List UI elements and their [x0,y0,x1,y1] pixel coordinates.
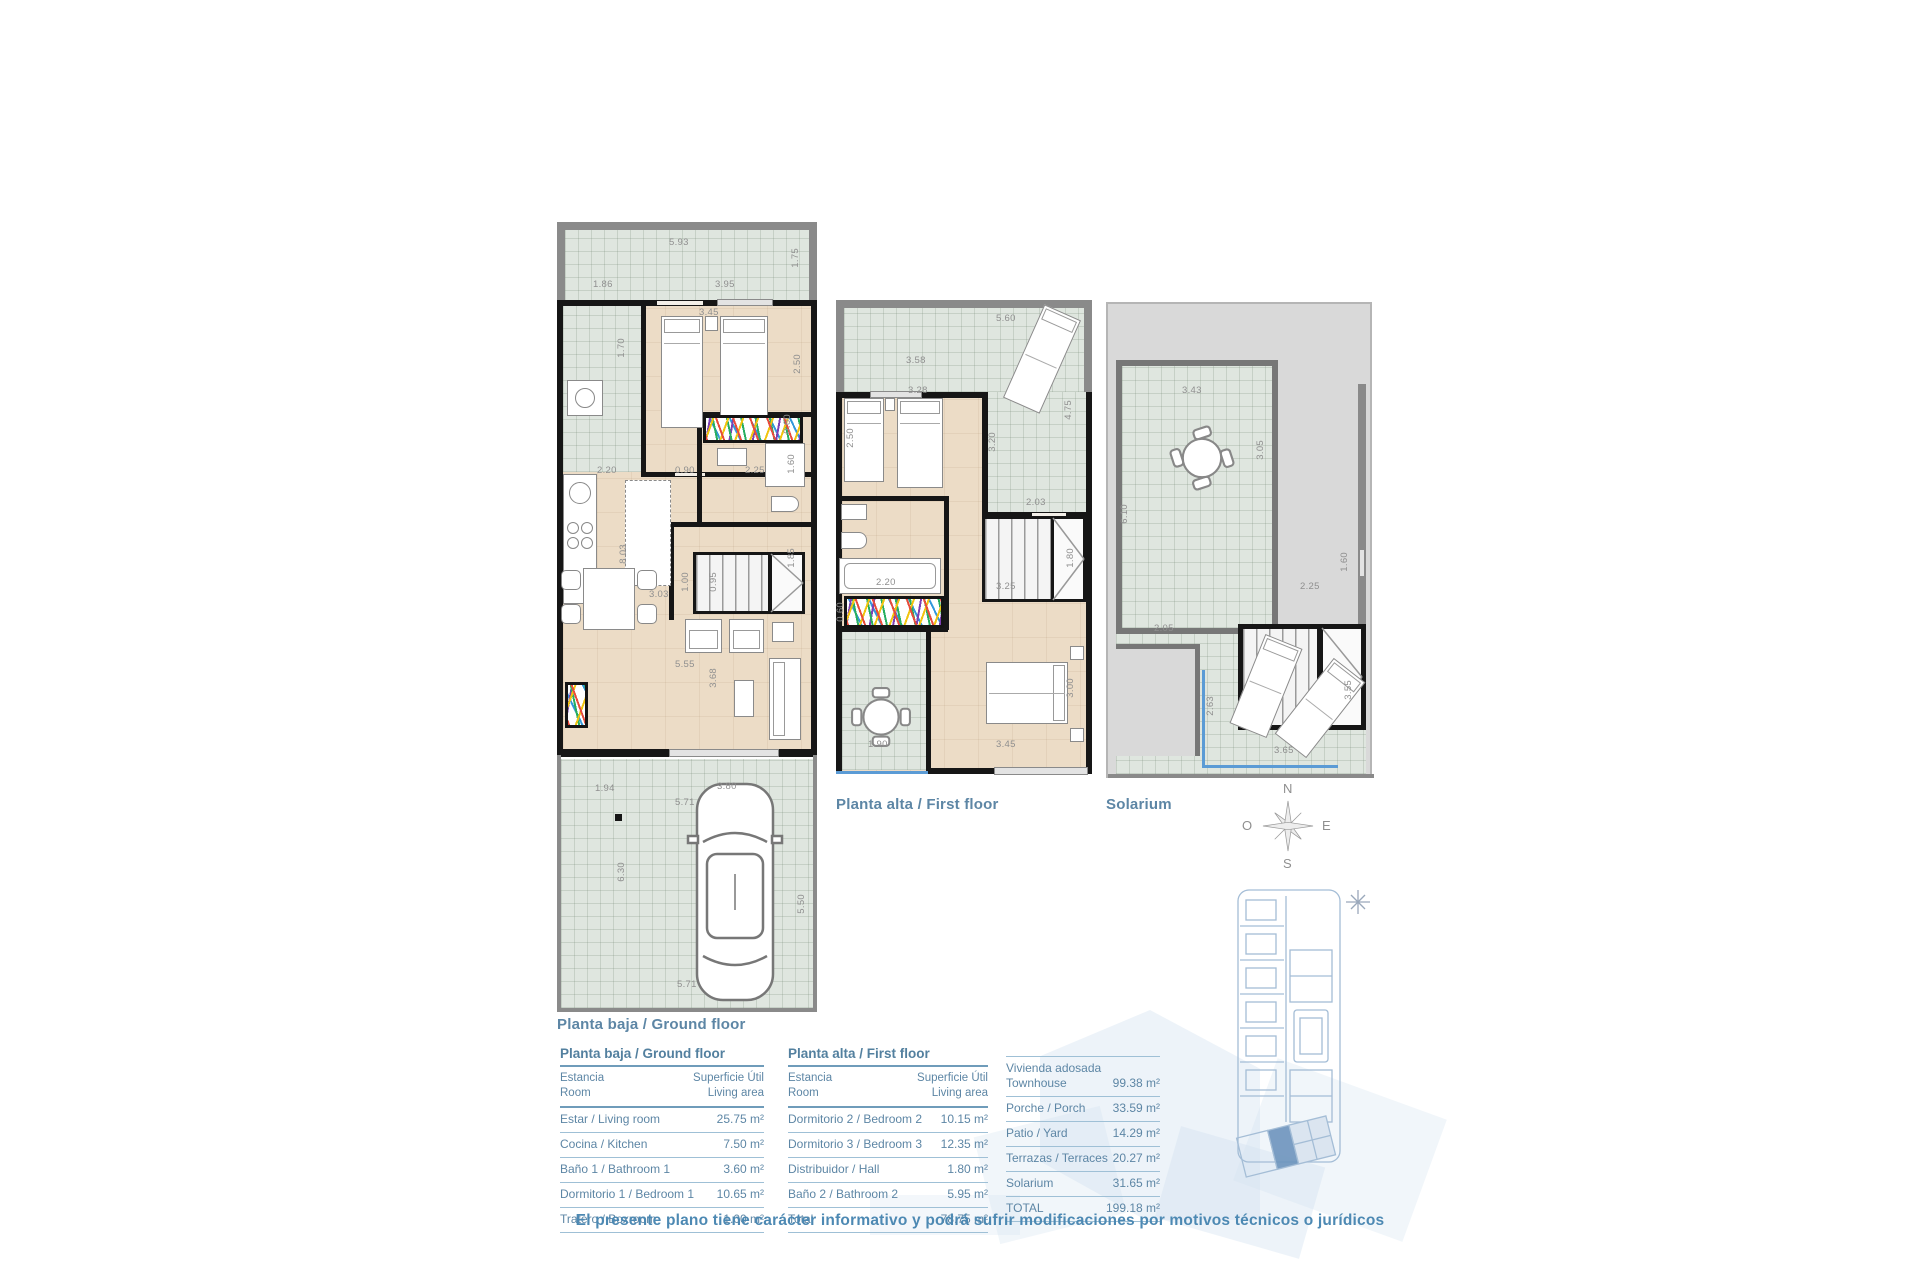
dimension-label: 2.03 [1026,498,1046,508]
table-row: Vivienda adosadaTownhouse 99.38 m² [1006,1057,1160,1097]
dimension-label: 2.50 [793,354,803,374]
dimension-label: 0.90 [675,466,695,476]
dimension-label: 6.30 [617,862,627,882]
totals-table: Vivienda adosadaTownhouse 99.38 m² Porch… [1006,1056,1160,1222]
dimension-label: 5.71 [677,980,697,990]
dimension-label: 1.00 [681,572,691,592]
dimension-label: 2.05 [1154,624,1174,634]
compass-east: E [1322,818,1331,833]
table-row: Dormitorio 3 / Bedroom 3 12.35 m² [788,1133,988,1158]
dimension-label: 2.25 [745,466,765,476]
dimension-label: 1.85 [787,548,797,568]
dimension-label: 3.00 [1066,678,1076,698]
dimension-label: 1.60 [787,454,797,474]
floor-plan-sheet: 5.931.751.863.953.452.501.702.200.902.25… [0,0,1920,1280]
dimension-label: 8.03 [619,544,629,564]
site-plan [1228,884,1403,1189]
dimension-label: 3.95 [715,280,735,290]
dimension-label: 6.10 [1120,504,1130,524]
dimension-label: 3.28 [908,386,928,396]
table-row: Dormitorio 1 / Bedroom 1 10.65 m² [560,1183,764,1208]
solarium-label: Solarium [1106,796,1172,813]
dimension-label: 1.70 [617,338,627,358]
disclaimer-text: El presente plano tiene carácter informa… [340,1212,1620,1230]
table-row: Baño 2 / Bathroom 2 5.95 m² [788,1183,988,1208]
dimension-label: 2.20 [876,578,896,588]
compass-north: N [1283,781,1292,796]
dimension-label: 2.20 [597,466,617,476]
table-header: EstanciaRoom Superficie ÚtilLiving area [788,1067,988,1108]
table-row: Distribuidor / Hall 1.80 m² [788,1158,988,1183]
dimension-label: 4.75 [1064,400,1074,420]
compass-rose [1260,798,1316,854]
dimension-label: 3.68 [709,668,719,688]
dimension-layer: 5.931.751.863.953.452.501.702.200.902.25… [557,222,817,1012]
dimension-layer: 3.433.056.101.602.252.052.633.553.65 [1108,304,1370,776]
dimension-label: 3.20 [988,432,998,452]
dimension-label: 5.55 [675,660,695,670]
first-floor-table: Planta alta / First floor EstanciaRoom S… [788,1046,988,1233]
dimension-label: 1.60 [1340,552,1350,572]
dimension-layer: 5.603.584.753.282.503.202.031.802.203.25… [836,300,1092,780]
table-row: Porche / Porch 33.59 m² [1006,1097,1160,1122]
first-floor-plan: 5.603.584.753.282.503.202.031.802.203.25… [836,300,1092,780]
first-floor-label: Planta alta / First floor [836,796,999,813]
dimension-label: 2.50 [846,428,856,448]
ground-floor-table: Planta baja / Ground floor EstanciaRoom … [560,1046,764,1233]
dimension-label: 1.75 [791,248,801,268]
dimension-label: 3.45 [996,740,1016,750]
dimension-label: 3.43 [1182,386,1202,396]
dimension-label: 5.50 [797,894,807,914]
dimension-label: 3.80 [717,782,737,792]
compass-west: O [1242,818,1252,833]
table-row: Patio / Yard 14.29 m² [1006,1122,1160,1147]
dimension-label: 3.03 [649,590,669,600]
dimension-label: 1.86 [593,280,613,290]
table-header: EstanciaRoom Superficie ÚtilLiving area [560,1067,764,1108]
table-title: Planta baja / Ground floor [560,1046,764,1067]
dimension-label: 0.95 [709,572,719,592]
compass-south: S [1283,856,1292,871]
dimension-label: 3.55 [1344,680,1354,700]
solarium-plan: 3.433.056.101.602.252.052.633.553.65 [1106,302,1372,778]
table-title: Planta alta / First floor [788,1046,988,1067]
dimension-label: 1.80 [1066,548,1076,568]
dimension-label: 3.65 [1274,746,1294,756]
table-row: Cocina / Kitchen 7.50 m² [560,1133,764,1158]
dimension-label: 2.25 [1300,582,1320,592]
dimension-label: 5.71 [675,798,695,808]
dimension-label: 2.63 [1206,696,1216,716]
dimension-label: 3.25 [996,582,1016,592]
table-row: Solarium 31.65 m² [1006,1172,1160,1197]
table-row: Dormitorio 2 / Bedroom 2 10.15 m² [788,1108,988,1133]
ground-floor-label: Planta baja / Ground floor [557,1016,746,1033]
dimension-label: 0.60 [783,414,793,434]
table-row: Estar / Living room 25.75 m² [560,1108,764,1133]
dimension-label: 3.45 [699,308,719,318]
dimension-label: 1.94 [595,784,615,794]
dimension-label: 5.93 [669,238,689,248]
dimension-label: 3.58 [906,356,926,366]
dimension-label: 3.05 [1256,440,1266,460]
dimension-label: 1.90 [868,740,888,750]
table-row: Baño 1 / Bathroom 1 3.60 m² [560,1158,764,1183]
dimension-label: 0.60 [836,602,846,622]
ground-floor-plan: 5.931.751.863.953.452.501.702.200.902.25… [557,222,817,1012]
table-row: Terrazas / Terraces 20.27 m² [1006,1147,1160,1172]
dimension-label: 5.60 [996,314,1016,324]
